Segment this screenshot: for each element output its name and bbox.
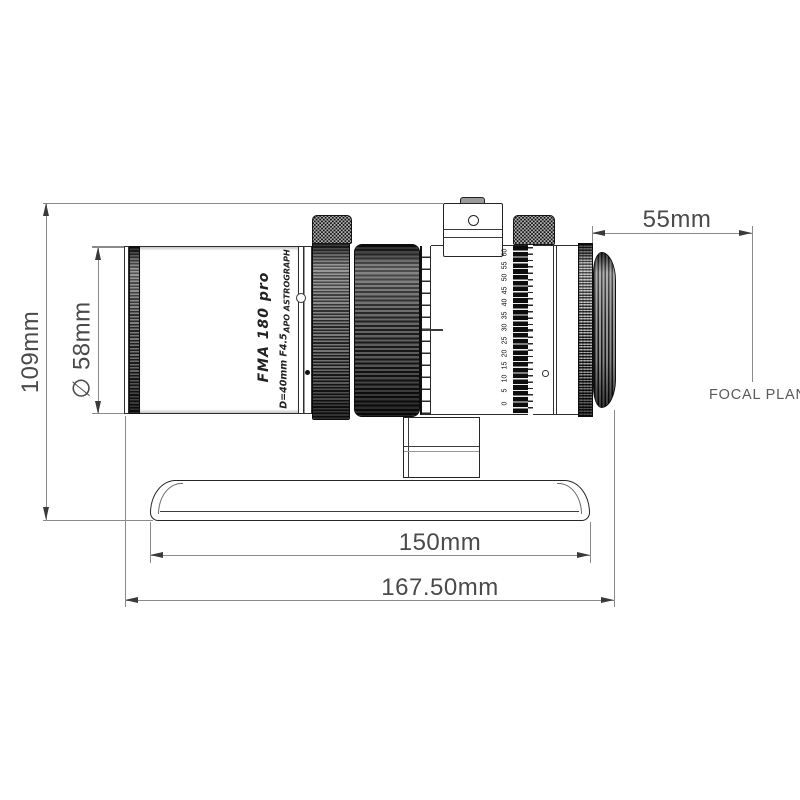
dew-shield-knurl-ring	[129, 246, 141, 414]
extension-line-top	[43, 203, 443, 205]
tube-label-model: FMA 180 pro	[256, 272, 272, 383]
technical-drawing-canvas: 109mm ∅ 58mm 55mm FOCAL PLANE 150mm 167.…	[0, 0, 800, 800]
dimension-height-line	[46, 203, 48, 520]
dovetail-inner-line	[160, 511, 579, 512]
dimension-dovetail-label: 150mm	[399, 529, 482, 557]
scale-number: 45	[501, 286, 508, 294]
arrowhead-icon	[592, 230, 605, 236]
rear-knurl-ring	[578, 243, 593, 417]
rear-dot-icon	[542, 370, 549, 377]
dimension-backfocus-label: 55mm	[643, 206, 712, 234]
arrowhead-icon	[601, 597, 614, 603]
arrowhead-icon	[739, 230, 752, 236]
extension-line-diameter-bottom	[92, 413, 125, 415]
scale-number: 60	[501, 249, 508, 257]
shoe-hole-icon	[468, 215, 479, 226]
focal-plane-line	[752, 226, 754, 382]
scale-number: 35	[501, 311, 508, 319]
index-pointer-left	[422, 329, 443, 331]
arrowhead-icon	[95, 247, 101, 260]
main-tube	[140, 246, 298, 414]
focal-plane-label: FOCAL PLANE	[709, 387, 800, 403]
rear-barrel-knob	[593, 252, 616, 408]
saddle-block	[403, 417, 480, 478]
scale-number: 40	[501, 299, 508, 307]
arrowhead-icon	[577, 552, 590, 558]
rear-section-a	[533, 245, 554, 415]
dimension-diameter-line	[98, 247, 100, 414]
scale-number: 55	[501, 261, 508, 269]
scale-number: 5	[501, 389, 508, 393]
scale-number: 25	[501, 337, 508, 345]
extension-line-diameter-top	[92, 246, 125, 248]
finder-shoe	[443, 203, 503, 257]
extension-line-overall-right	[614, 410, 616, 607]
tube-label-type: APO ASTROGRAPH	[283, 249, 292, 333]
dovetail-end-curve-left	[158, 483, 183, 514]
dimension-height-label: 109mm	[17, 311, 45, 394]
set-screw-icon	[296, 293, 306, 303]
dimension-overall-line	[125, 600, 614, 602]
saddle-line	[404, 451, 479, 452]
arrowhead-icon	[150, 552, 163, 558]
scale-number: 50	[501, 274, 508, 282]
arrowhead-icon	[43, 203, 49, 216]
saddle-line	[404, 446, 479, 447]
extension-line-dovetail-right	[590, 522, 592, 563]
saddle-inner-edge	[408, 418, 409, 477]
scale-number: 20	[501, 349, 508, 357]
dimension-dovetail-line	[150, 555, 590, 557]
focuser-scale-band	[513, 245, 528, 415]
extension-line-dovetail-left	[150, 522, 152, 563]
arrowhead-icon	[125, 597, 138, 603]
scale-number: 10	[501, 374, 508, 382]
shoe-line	[444, 229, 502, 230]
scale-number: 0	[501, 401, 508, 405]
scale-number: 30	[501, 324, 508, 332]
arrowhead-icon	[43, 507, 49, 520]
dovetail-bar	[150, 480, 590, 521]
extension-line-overall-left	[125, 416, 127, 607]
rear-thumbscrew	[513, 215, 555, 245]
dovetail-end-curve-right	[557, 483, 582, 514]
index-dot-icon	[305, 370, 310, 375]
front-thumbscrew	[312, 215, 352, 244]
focuser-scale-numbers: 605550454035302520151050	[497, 249, 512, 407]
dimension-diameter-label: ∅ 58mm	[68, 301, 97, 398]
shoe-line	[444, 237, 502, 238]
focuser-grip	[354, 244, 420, 417]
tube-label-spec: D=40mm F4.5	[279, 333, 290, 409]
dimension-overall-label: 167.50mm	[381, 574, 498, 602]
tube-end-ring	[298, 246, 312, 414]
rear-section-b	[557, 245, 579, 415]
scale-number: 15	[501, 362, 508, 370]
lens-cell-knurl-ring	[312, 242, 350, 420]
extension-line-bottom-left	[43, 520, 153, 522]
